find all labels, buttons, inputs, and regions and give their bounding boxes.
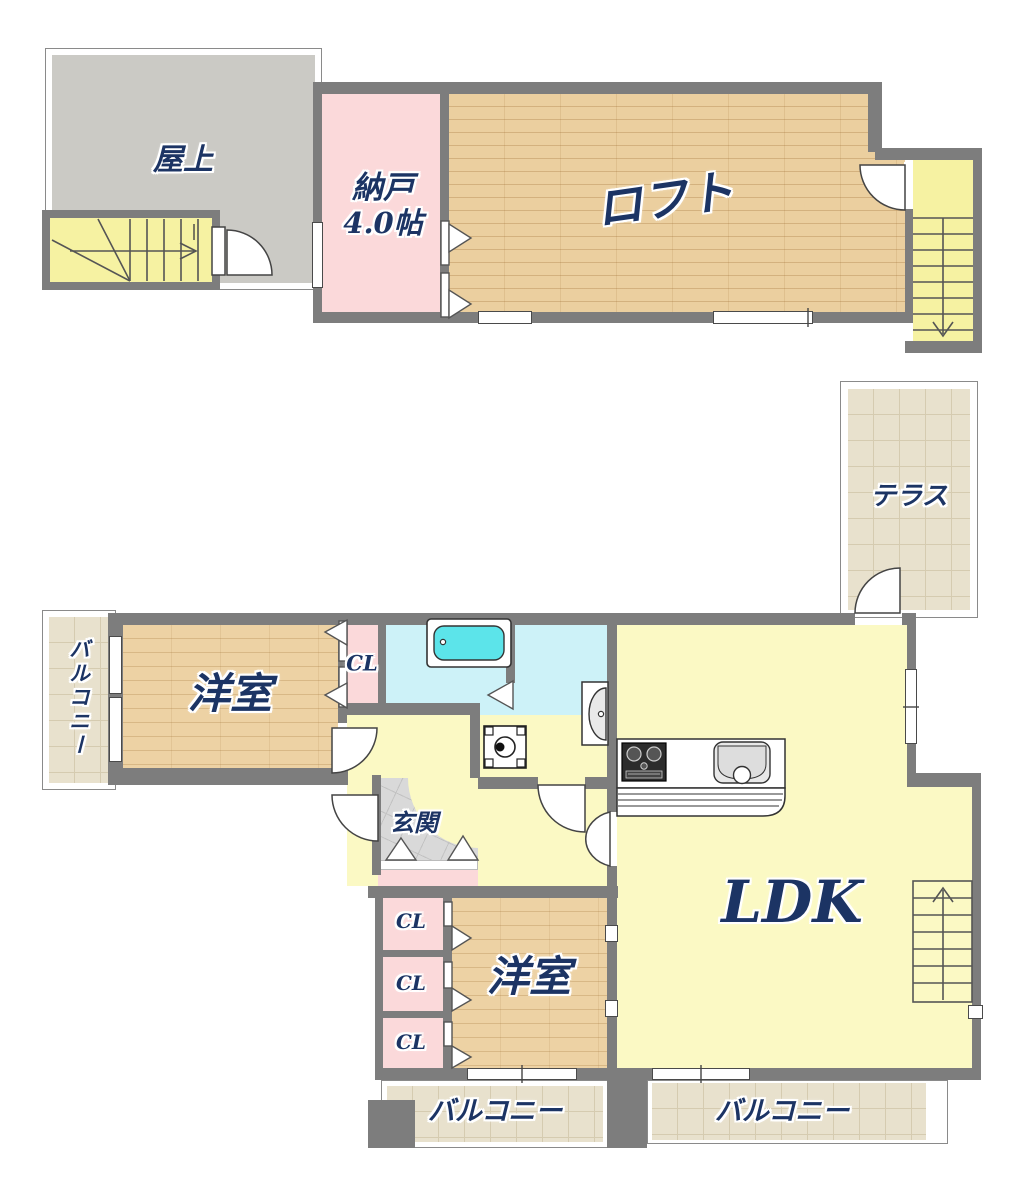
room-label-balcony-side: バルコニー bbox=[67, 638, 90, 758]
room-label-storage-size: 4.0帖 bbox=[343, 208, 422, 240]
labels-layer: 屋上 納戸 4.0帖 ロフト テラス バルコニー 洋室 CL 玄関 LDK CL… bbox=[0, 0, 1029, 1200]
room-label-balcony-left: バルコニー bbox=[428, 1097, 562, 1127]
room-label-terrace: テラス bbox=[870, 483, 947, 512]
room-label-closet-3: CL bbox=[396, 1031, 426, 1053]
room-label-loft: ロフト bbox=[593, 165, 737, 234]
room-label-closet-1: CL bbox=[396, 910, 426, 932]
floor-plan: 屋上 納戸 4.0帖 ロフト テラス バルコニー 洋室 CL 玄関 LDK CL… bbox=[0, 0, 1029, 1200]
room-label-balcony-right: バルコニー bbox=[715, 1097, 849, 1127]
room-label-rooftop: 屋上 bbox=[153, 144, 213, 177]
room-label-western-lower: 洋室 bbox=[487, 954, 571, 1000]
room-label-entrance: 玄関 bbox=[390, 810, 438, 836]
room-label-storage: 納戸 bbox=[352, 171, 414, 205]
room-label-closet-2: CL bbox=[396, 972, 426, 994]
room-label-closet-upper: CL bbox=[346, 651, 377, 674]
room-label-western-upper: 洋室 bbox=[188, 671, 272, 717]
room-label-ldk: LDK bbox=[721, 871, 863, 935]
